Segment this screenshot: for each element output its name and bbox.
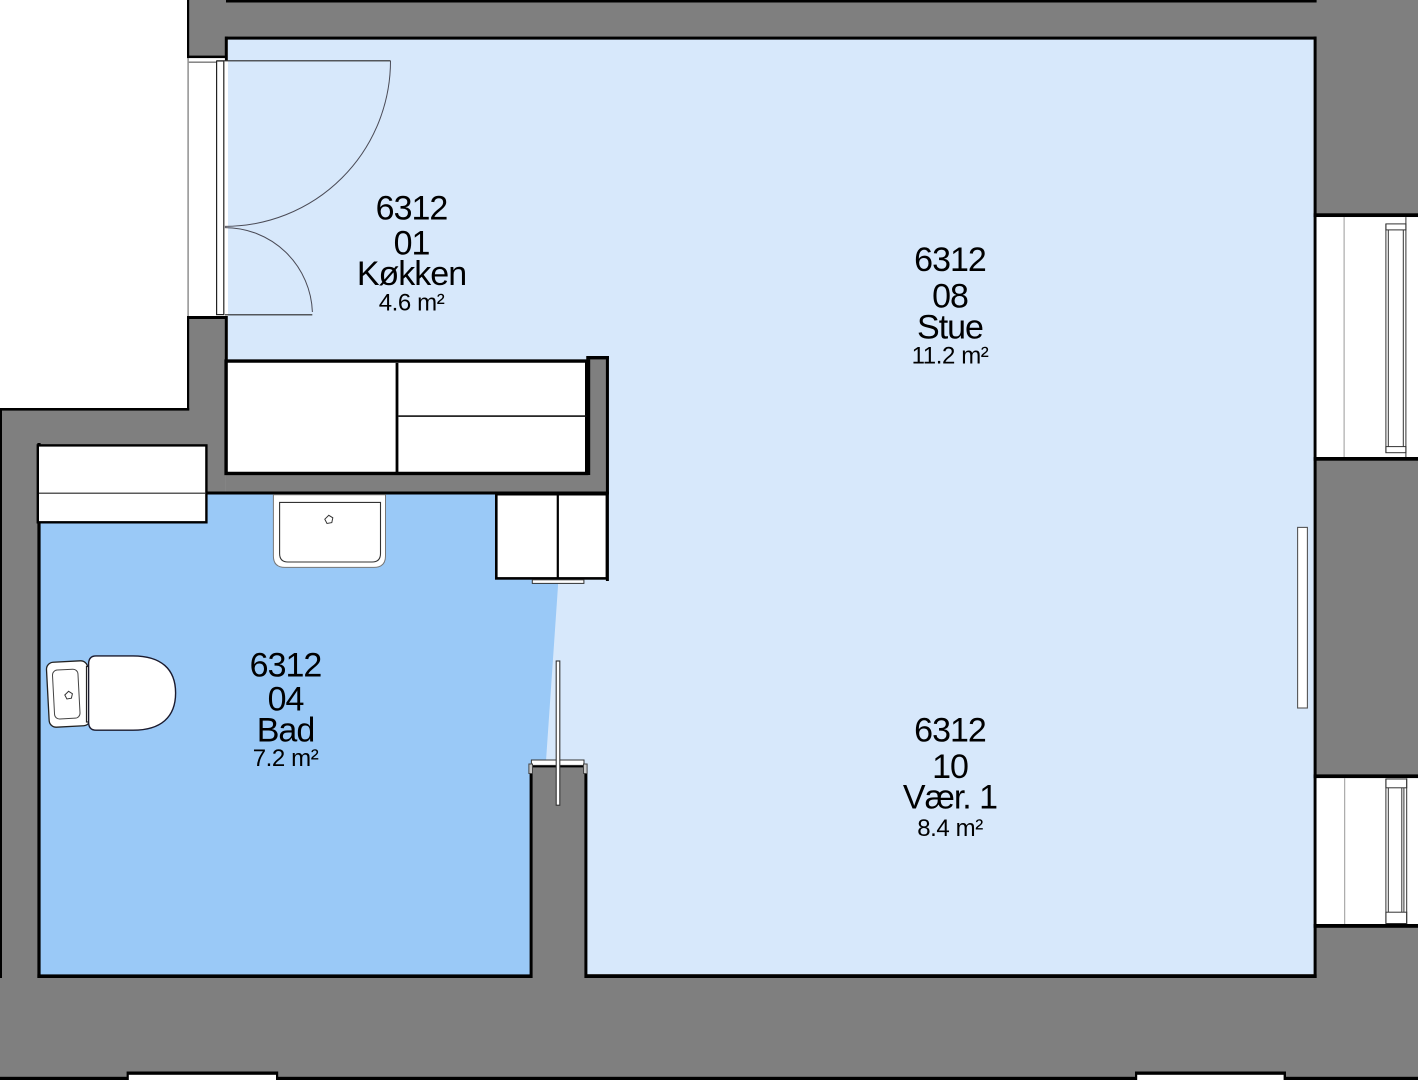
svg-text:7.2 m²: 7.2 m² <box>253 745 319 772</box>
svg-text:8.4 m²: 8.4 m² <box>917 815 983 842</box>
svg-text:6312: 6312 <box>914 241 986 279</box>
svg-text:6312: 6312 <box>376 190 448 228</box>
svg-text:Bad: Bad <box>257 711 315 749</box>
svg-text:6312: 6312 <box>250 647 322 685</box>
svg-text:Vær. 1: Vær. 1 <box>903 778 997 816</box>
svg-text:Stue: Stue <box>917 308 983 346</box>
svg-text:4.6 m²: 4.6 m² <box>379 290 445 317</box>
svg-text:6312: 6312 <box>914 712 986 750</box>
svg-text:Køkken: Køkken <box>357 255 466 293</box>
svg-text:11.2 m²: 11.2 m² <box>912 343 989 370</box>
